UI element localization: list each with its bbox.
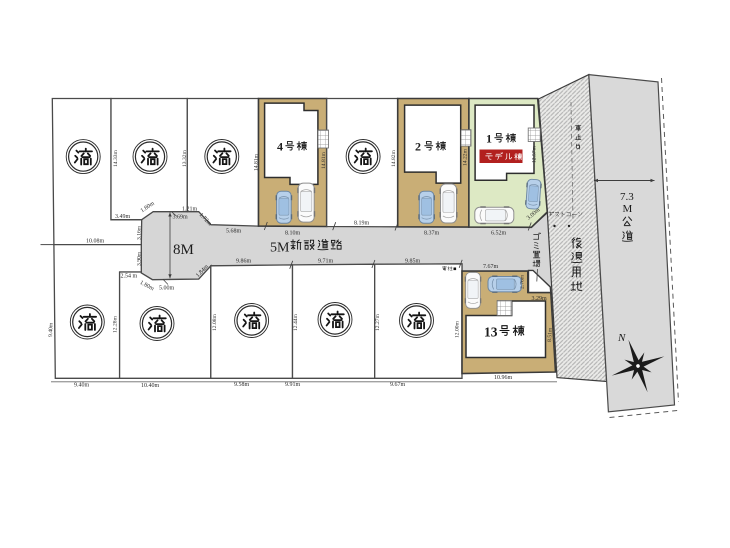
svg-text:8.51m: 8.51m <box>547 327 554 342</box>
svg-text:3.49m: 3.49m <box>115 214 131 220</box>
svg-text:9.40m: 9.40m <box>48 322 55 337</box>
svg-text:9.58m: 9.58m <box>234 382 250 388</box>
svg-text:12.57m: 12.57m <box>532 145 538 163</box>
svg-text:10.08m: 10.08m <box>86 239 105 245</box>
svg-text:8.37m: 8.37m <box>424 231 440 237</box>
svg-text:6.52m: 6.52m <box>491 231 507 237</box>
svg-text:2: 2 <box>415 140 421 154</box>
svg-text:12.44m: 12.44m <box>293 313 299 331</box>
svg-text:12.00m: 12.00m <box>455 320 461 338</box>
svg-text:M: M <box>623 203 633 215</box>
svg-text:7.67m: 7.67m <box>483 264 499 270</box>
svg-text:10.40m: 10.40m <box>141 383 160 389</box>
svg-text:9.91m: 9.91m <box>285 382 301 388</box>
svg-text:9.67m: 9.67m <box>390 382 406 388</box>
svg-text:14.82m: 14.82m <box>391 149 397 167</box>
svg-text:5.68m: 5.68m <box>226 229 242 235</box>
svg-text:9.71m: 9.71m <box>318 259 334 265</box>
svg-text:1: 1 <box>486 132 492 146</box>
svg-text:9.85m: 9.85m <box>405 259 421 265</box>
svg-text:5M: 5M <box>270 241 290 256</box>
svg-text:1.21m: 1.21m <box>182 207 198 213</box>
svg-text:3.69m: 3.69m <box>173 215 189 221</box>
svg-text:5.00m: 5.00m <box>159 286 175 292</box>
svg-text:8.10m: 8.10m <box>285 231 301 237</box>
svg-text:13.32m: 13.32m <box>182 149 188 167</box>
svg-text:8.19m: 8.19m <box>354 220 370 226</box>
svg-text:14.22m: 14.22m <box>463 148 469 166</box>
svg-text:8M: 8M <box>173 242 194 258</box>
svg-text:2.54 m: 2.54 m <box>121 274 138 280</box>
svg-text:12.27m: 12.27m <box>375 313 381 331</box>
svg-text:14.81m: 14.81m <box>254 153 260 171</box>
svg-text:9.40m: 9.40m <box>74 383 90 389</box>
svg-text:14.81m: 14.81m <box>321 151 327 169</box>
svg-text:13: 13 <box>484 325 498 340</box>
svg-text:10.96m: 10.96m <box>494 375 513 381</box>
svg-text:7.3: 7.3 <box>620 191 634 203</box>
svg-text:4: 4 <box>277 140 283 154</box>
svg-text:9.86m: 9.86m <box>236 259 252 265</box>
svg-text:3.90m: 3.90m <box>137 251 143 266</box>
svg-text:3.29m: 3.29m <box>532 296 548 302</box>
svg-text:3.16m: 3.16m <box>137 225 143 240</box>
svg-text:14.33m: 14.33m <box>113 149 119 167</box>
svg-text:12.28m: 12.28m <box>113 315 119 333</box>
svg-text:N: N <box>617 332 626 344</box>
svg-text:2.76m: 2.76m <box>520 274 526 289</box>
svg-text:12.08m: 12.08m <box>212 313 218 331</box>
